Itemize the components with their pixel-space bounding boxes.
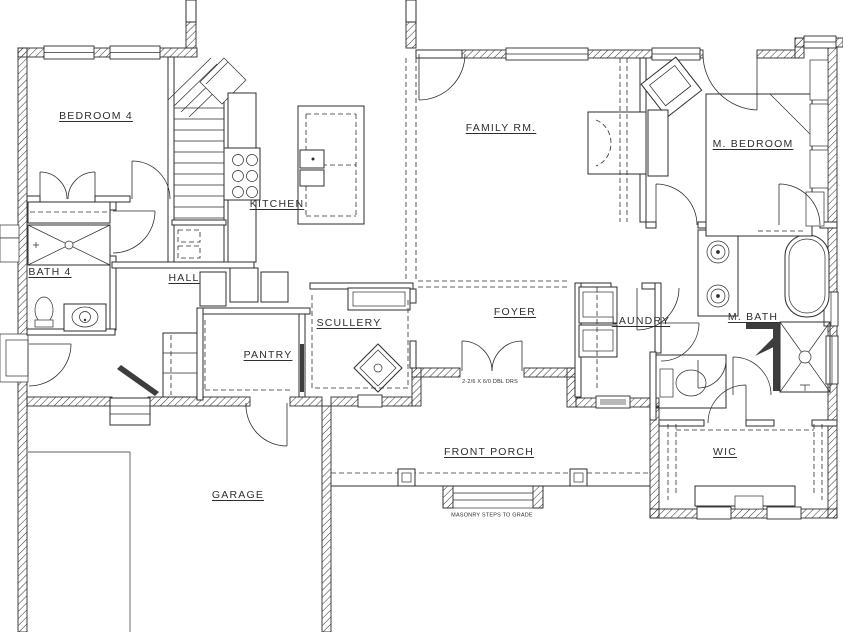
room-label-kitchen: KITCHEN <box>250 198 305 210</box>
headboard-panel <box>810 104 828 146</box>
side-entry-door <box>29 344 71 386</box>
room-label-family-room: FAMILY RM. <box>466 122 537 134</box>
room-label-front-porch: FRONT PORCH <box>444 446 534 458</box>
mudroom-fixtures <box>117 333 197 397</box>
annotation-masonry-steps: MASONRY STEPS TO GRADE <box>450 512 534 519</box>
porch <box>331 469 650 508</box>
room-label-bath4: BATH 4 <box>28 266 71 278</box>
pantry-pocket-door <box>300 344 304 392</box>
fireplace <box>588 112 646 174</box>
garage-fixtures <box>28 398 150 632</box>
headboard-panel <box>810 150 828 188</box>
closet-door-right <box>68 172 95 199</box>
hall-cabinet <box>261 272 288 302</box>
room-label-pantry: PANTRY <box>244 349 293 361</box>
angled-door <box>117 365 159 396</box>
laundry-fixtures <box>579 287 617 390</box>
room-label-hall: HALL <box>168 272 199 284</box>
side-stoop <box>0 334 28 382</box>
closet-door-left <box>40 172 67 199</box>
closet-shelf <box>28 202 110 223</box>
room-label-bedroom4: BEDROOM 4 <box>59 110 133 122</box>
scullery-fixtures <box>205 288 410 392</box>
hall-lockers <box>163 333 197 397</box>
room-label-foyer: FOYER <box>494 306 536 318</box>
front-door-right <box>492 341 522 371</box>
scullery-window <box>358 395 382 407</box>
toilet <box>676 370 706 396</box>
dresser <box>648 110 668 176</box>
dining-family-door <box>419 54 465 100</box>
headboard-panel <box>810 60 828 100</box>
scullery-sink <box>354 344 402 392</box>
bed <box>706 94 812 236</box>
master-bedroom-door <box>656 184 697 225</box>
garage-steps <box>110 398 150 425</box>
wic-window <box>697 507 731 519</box>
room-label-scullery: SCULLERY <box>317 317 382 329</box>
porch-column <box>398 469 415 486</box>
room-label-garage: GARAGE <box>212 489 264 501</box>
wic-fixtures <box>668 424 822 509</box>
hall-cabinet <box>200 272 226 306</box>
porch-column <box>570 469 587 486</box>
bath4-door <box>113 211 155 253</box>
wic-window <box>767 507 801 519</box>
room-label-master-bedroom: M. BEDROOM <box>713 138 794 150</box>
wic-door <box>708 385 746 423</box>
annotation-front-doors: 2-2/6 X 6/0 DBL DRS <box>462 379 518 385</box>
pedestal-sink <box>35 297 53 323</box>
wic-cabinet <box>735 496 763 509</box>
garage-bay-line <box>28 452 130 632</box>
floor-plan-page: DINING BEDROOM 4 KITCHEN FAMILY RM. M. B… <box>0 0 843 632</box>
toilet-tank <box>660 369 673 397</box>
floor-plan-drawing <box>0 0 843 632</box>
front-door-left <box>462 341 492 371</box>
room-label-master-bath: M. BATH <box>728 311 778 323</box>
bedroom4-door <box>132 161 170 199</box>
room-label-laundry: LAUNDRY <box>612 315 670 327</box>
room-label-wic: WIC <box>713 446 737 458</box>
chair <box>641 57 702 117</box>
garage-entry-door <box>246 403 287 446</box>
masonry-steps <box>443 486 543 508</box>
bath-hall-door <box>733 357 771 395</box>
hall-cabinet <box>230 268 258 302</box>
scullery-counter <box>348 288 410 310</box>
